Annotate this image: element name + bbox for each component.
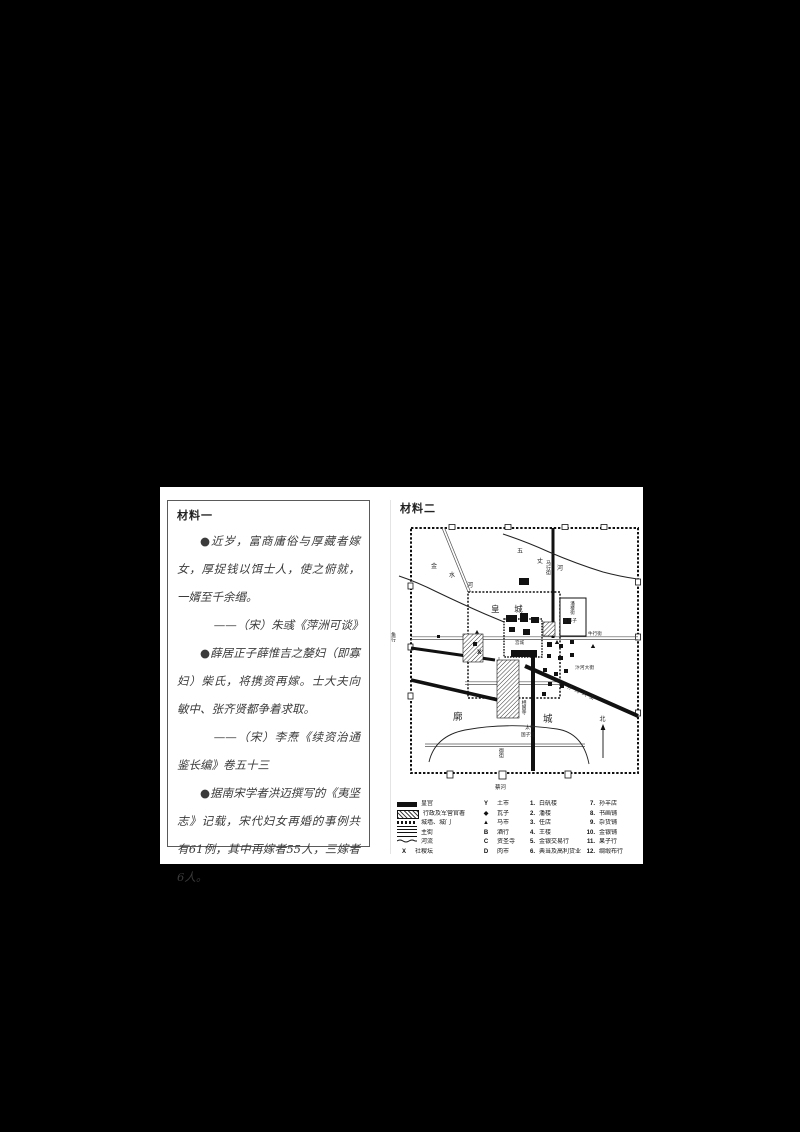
label-gongcheng: 宫城: [515, 639, 524, 646]
material1-title: 材料一: [177, 507, 360, 523]
label-wuzhang-2: 丈: [537, 557, 543, 565]
diamond-symbol: ◆: [479, 810, 493, 819]
dongjing-city-map: X 皇 城 宫城 廓 城 金 水 河 五 丈 河 汴河大街 汴河大街 马行街 潘…: [391, 522, 644, 798]
material1-source: ——（宋）朱彧《萍洲可谈》: [177, 611, 360, 639]
triangle-symbol: ▲: [479, 819, 493, 828]
material1-source: ——（宋）李焘《续资治通鉴长编》卷五十三: [177, 723, 360, 779]
label-cai-river: 蔡河: [495, 783, 507, 791]
map-legend: 皇宫 行政及军营官署 城墙、城门 主街 河流 X社稷坛 Y土市 ◆瓦子 ▲马市 …: [397, 800, 641, 857]
legend-column-1-6: 1.白矾楼 2.潘楼 3.任店 4.王楼 5.金银交易行 6.典当及高利贷业: [525, 800, 585, 857]
label-yuhang: 鱼行: [391, 631, 396, 643]
material2-panel: 材料二: [390, 500, 644, 854]
material1-paragraph: ●据南宋学者洪迈撰写的《夷坚志》记载，宋代妇女再婚的事例共有61例，其中再嫁者5…: [177, 779, 360, 891]
document-sheet: 材料一 ●近岁，富商庸俗与厚藏者嫁女，厚捉钱以饵士人，使之俯就，一婿至千余缗。 …: [160, 487, 643, 864]
material1-panel: 材料一 ●近岁，富商庸俗与厚藏者嫁女，厚捉钱以饵士人，使之俯就，一婿至千余缗。 …: [167, 500, 370, 847]
bian-river-west-lower: [411, 680, 507, 702]
label-guozijian: 国子监: [521, 731, 535, 738]
map-svg: X 皇 城 宫城 廓 城 金 水 河 五 丈 河 汴河大街 汴河大街 马行街 潘…: [391, 522, 644, 798]
legend-column-7-12: 7.孙羊店 8.书画铺 9.杂货铺 10.金银铺 11.果子行 12.绸缎布行: [585, 800, 641, 857]
label-jinshui-3: 河: [467, 581, 473, 589]
government-office-areas: [463, 622, 555, 718]
wuzhang-river: [503, 534, 638, 579]
label-wuzhang-1: 五: [517, 548, 523, 555]
label-niuhang-street: 牛行街: [588, 630, 602, 637]
palace-swatch: [397, 802, 417, 807]
label-huangcheng: 皇 城: [491, 604, 529, 615]
label-kuocheng-cheng: 城: [543, 714, 553, 725]
label-xiangguo-temple: 相国寺: [521, 699, 526, 715]
label-bianhe-street-diagonal: 汴河大街: [566, 683, 598, 702]
material2-title: 材料二: [400, 500, 436, 516]
label-mahang-street: 马行街: [545, 559, 551, 576]
legend-column-swatches: 皇宫 行政及军营官署 城墙、城门 主街 河流 X社稷坛: [397, 800, 479, 857]
label-imperial-street: 御街: [498, 747, 504, 759]
material1-paragraph: ●薛居正子薛惟吉之嫠妇（即寡妇）柴氏，将携资再嫁。士大夫向敏中、张齐贤都争着求取…: [177, 639, 360, 723]
svg-text:北: 北: [600, 715, 606, 723]
material1-paragraph: ●近岁，富商庸俗与厚藏者嫁女，厚捉钱以饵士人，使之俯就，一婿至千余缗。: [177, 527, 360, 611]
wall-swatch: [397, 821, 417, 827]
legend-column-symbols: Y土市 ◆瓦子 ▲马市 B酒行 C资圣寺 D肉市: [479, 800, 525, 857]
label-jinshui-2: 水: [449, 571, 455, 579]
label-wuzhang-3: 河: [557, 564, 563, 572]
office-swatch: [397, 810, 419, 819]
material1-body: ●近岁，富商庸俗与厚藏者嫁女，厚捉钱以饵士人，使之俯就，一婿至千余缗。 ——（宋…: [177, 527, 360, 891]
palace-buildings: [506, 613, 539, 657]
jinshui-river: [399, 576, 504, 622]
label-bianhe-street-east: 汴河大街: [575, 664, 594, 671]
cai-river-curve: [429, 726, 589, 764]
label-kuocheng-kuo: 廓: [453, 711, 463, 723]
shejitan-x-marker: X: [477, 649, 482, 656]
north-arrow: 北: [600, 715, 606, 758]
mahang-street-bar: [552, 528, 555, 638]
label-panlou-street: 潘楼街: [570, 600, 575, 616]
imperial-street-bar: [531, 657, 535, 771]
x-symbol: X: [397, 848, 411, 857]
label-taixue: 太学: [525, 724, 535, 731]
label-guishizi: 鬼市子: [563, 617, 577, 624]
label-jinshui-1: 金: [431, 562, 437, 570]
